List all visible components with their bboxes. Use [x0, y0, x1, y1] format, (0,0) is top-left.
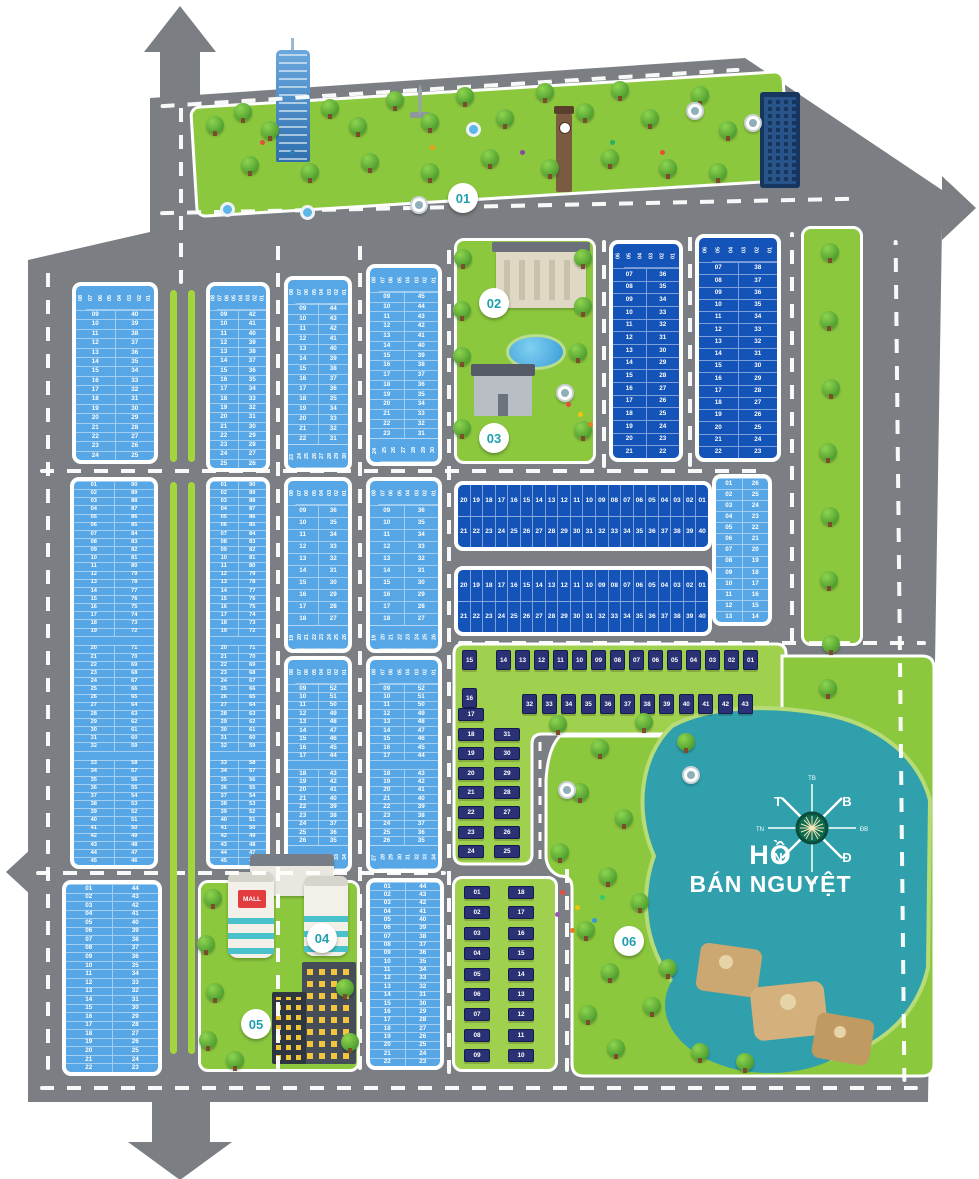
lot-cell[interactable]: 03	[413, 268, 422, 292]
lot-cell[interactable]: 16	[288, 375, 318, 384]
lot-cell[interactable]: 35	[633, 517, 646, 548]
lot-cell[interactable]: 31	[646, 332, 680, 344]
lot-cell[interactable]: 22	[66, 1064, 112, 1072]
lot-cell[interactable]: 25	[112, 1047, 159, 1055]
lot-cell[interactable]: 16	[370, 590, 404, 601]
lot-cell[interactable]: 48	[114, 842, 155, 849]
lot-cell[interactable]: 18	[370, 381, 404, 390]
lot-cell[interactable]: 03	[413, 660, 422, 684]
lot-cell[interactable]: 20	[76, 414, 115, 422]
lot-cell[interactable]: 09	[595, 485, 608, 516]
house-lot[interactable]: 13	[515, 650, 530, 670]
lot-cell[interactable]: 74	[238, 612, 267, 619]
lot-cell[interactable]: 19	[613, 421, 646, 433]
lot-cell[interactable]: 31	[582, 602, 595, 633]
lot-cell[interactable]: 05	[396, 660, 405, 684]
lot-cell[interactable]: 17	[370, 753, 404, 760]
lot-cell[interactable]: 45	[74, 858, 114, 865]
lot-cell[interactable]: 52	[238, 809, 267, 816]
lot-cell[interactable]: 37	[210, 793, 238, 800]
house-lot[interactable]: 33	[542, 694, 557, 714]
house-lot[interactable]: 24	[458, 845, 484, 858]
lot-cell[interactable]: 03	[646, 244, 657, 268]
lot-cell[interactable]: 30	[115, 405, 155, 413]
lot-cell[interactable]: 13	[545, 485, 558, 516]
lot-cell[interactable]: 16	[74, 604, 114, 611]
lot-cell[interactable]: 85	[238, 523, 267, 530]
lot-cell[interactable]: 06	[66, 928, 112, 936]
lot-cell[interactable]: 32	[413, 846, 422, 869]
lot-cell[interactable]: 29	[557, 602, 570, 633]
lot-block-m9[interactable]: 0807060504030201095210511150124913481447…	[366, 656, 442, 873]
lot-cell[interactable]: 23	[404, 626, 413, 649]
lot-cell[interactable]: 51	[238, 817, 267, 824]
lot-cell[interactable]: 17	[210, 612, 238, 619]
lot-cell[interactable]: 13	[288, 345, 318, 354]
lot-cell[interactable]: 76	[238, 596, 267, 603]
lot-cell[interactable]: 40	[404, 342, 439, 351]
lot-cell[interactable]: 01	[210, 482, 238, 489]
lot-cell[interactable]: 69	[238, 662, 267, 669]
lot-cell[interactable]: 23	[112, 1064, 159, 1072]
house-lot[interactable]: 42	[718, 694, 733, 714]
lot-cell[interactable]: 22	[646, 446, 680, 458]
lot-cell[interactable]: 40	[318, 795, 349, 802]
lot-cell[interactable]: 16	[66, 1013, 112, 1021]
lot-cell[interactable]: 47	[318, 727, 349, 734]
lot-cell[interactable]: 19	[470, 485, 483, 516]
lot-cell[interactable]: 06	[96, 286, 106, 310]
lot-block-m2[interactable]: 0190028903880487058606850784088309821081…	[206, 477, 270, 869]
lot-cell[interactable]: 02	[421, 481, 430, 505]
lot-cell[interactable]: 53	[238, 801, 267, 808]
lot-cell[interactable]: 24	[370, 439, 380, 462]
lot-cell[interactable]: 47	[404, 727, 439, 734]
lot-cell[interactable]: 36	[404, 506, 439, 517]
house-lot[interactable]: 30	[494, 747, 520, 760]
lot-cell[interactable]: 04	[115, 286, 125, 310]
lot-cell[interactable]: 04	[725, 238, 738, 262]
lot-cell[interactable]: 12	[76, 339, 115, 347]
lot-cell[interactable]: 14	[532, 485, 545, 516]
lot-cell[interactable]: 08	[288, 660, 296, 684]
lot-cell[interactable]: 41	[318, 787, 349, 794]
lot-cell[interactable]: 63	[114, 711, 155, 718]
lot-cell[interactable]: 32	[405, 983, 441, 990]
lot-cell[interactable]: 24	[112, 1056, 159, 1064]
lot-cell[interactable]: 23	[742, 512, 769, 522]
house-lot[interactable]: 05	[667, 650, 682, 670]
lot-cell[interactable]: 15	[210, 596, 238, 603]
lot-cell[interactable]: 73	[114, 620, 155, 627]
lot-cell[interactable]: 38	[112, 936, 159, 944]
lot-cell[interactable]: 15	[288, 578, 318, 589]
lot-cell[interactable]: 34	[404, 530, 439, 541]
lot-cell[interactable]: 10	[210, 320, 238, 328]
lot-cell[interactable]: 18	[210, 395, 238, 403]
lot-cell[interactable]: 25	[380, 439, 390, 462]
lot-cell[interactable]: 30	[74, 727, 114, 734]
lot-cell[interactable]: 17	[495, 485, 508, 516]
lot-cell[interactable]: 35	[210, 777, 238, 784]
lot-cell[interactable]: 11	[74, 563, 114, 570]
lot-cell[interactable]: 22	[76, 433, 115, 441]
lot-cell[interactable]: 78	[114, 580, 155, 587]
lot-cell[interactable]: 40	[74, 817, 114, 824]
lot-cell[interactable]: 33	[210, 761, 238, 768]
lot-cell[interactable]: 05	[396, 268, 405, 292]
lot-cell[interactable]: 36	[115, 349, 155, 357]
lot-cell[interactable]: 43	[405, 891, 441, 898]
lot-cell[interactable]: 08	[76, 286, 86, 310]
lot-cell[interactable]: 08	[613, 282, 646, 294]
lot-cell[interactable]: 60	[114, 735, 155, 742]
lot-cell[interactable]: 54	[114, 793, 155, 800]
lot-cell[interactable]: 44	[112, 885, 159, 893]
lot-cell[interactable]: 05	[716, 523, 742, 533]
house-lot[interactable]: 11	[553, 650, 568, 670]
lot-cell[interactable]: 01	[430, 481, 439, 505]
lot-cell[interactable]: 75	[114, 604, 155, 611]
house-lot[interactable]: 06	[648, 650, 663, 670]
lot-cell[interactable]: 19	[288, 405, 318, 414]
lot-cell[interactable]: 09	[288, 506, 318, 517]
lot-cell[interactable]: 18	[76, 395, 115, 403]
lot-cell[interactable]: 38	[670, 517, 683, 548]
lot-cell[interactable]: 25	[210, 686, 238, 693]
lot-cell[interactable]: 19	[370, 778, 404, 785]
lot-cell[interactable]: 49	[404, 710, 439, 717]
lot-cell[interactable]: 36	[646, 269, 680, 281]
house-lot[interactable]: 34	[561, 694, 576, 714]
lot-cell[interactable]: 25	[507, 602, 520, 633]
lot-cell[interactable]: 10	[288, 315, 318, 324]
lot-cell[interactable]: 13	[66, 988, 112, 996]
lot-cell[interactable]: 83	[238, 539, 267, 546]
lot-cell[interactable]: 29	[557, 517, 570, 548]
house-lot[interactable]: 15	[508, 947, 534, 960]
house-lot[interactable]: 07	[464, 1008, 490, 1021]
lot-cell[interactable]: 11	[76, 330, 115, 338]
lot-cell[interactable]: 30	[646, 345, 680, 357]
lot-cell[interactable]: 32	[404, 554, 439, 565]
lot-cell[interactable]: 42	[210, 834, 238, 841]
lot-cell[interactable]: 39	[683, 602, 696, 633]
lot-cell[interactable]: 64	[238, 703, 267, 710]
lot-cell[interactable]: 21	[613, 446, 646, 458]
lot-cell[interactable]: 03	[738, 238, 751, 262]
lot-cell[interactable]: 21	[303, 626, 311, 649]
lot-cell[interactable]: 22	[74, 662, 114, 669]
lot-cell[interactable]: 89	[238, 490, 267, 497]
lot-cell[interactable]: 11	[370, 967, 405, 974]
lot-cell[interactable]: 07	[217, 286, 224, 310]
lot-cell[interactable]: 27	[238, 450, 267, 458]
lot-cell[interactable]: 54	[238, 793, 267, 800]
house-lot[interactable]: 08	[464, 1029, 490, 1042]
lot-cell[interactable]: 17	[370, 1017, 405, 1024]
house-lot[interactable]: 05	[464, 968, 490, 981]
lot-cell[interactable]: 41	[318, 335, 349, 344]
lot-cell[interactable]: 44	[318, 753, 349, 760]
lot-cell[interactable]: 04	[716, 512, 742, 522]
lot-cell[interactable]: 20	[370, 1042, 405, 1049]
lot-cell[interactable]: 45	[404, 293, 439, 302]
lot-cell[interactable]: 11	[613, 320, 646, 332]
lot-cell[interactable]: 16	[76, 377, 115, 385]
lot-cell[interactable]: 18	[370, 1025, 405, 1032]
lot-cell[interactable]: 40	[210, 817, 238, 824]
lot-cell[interactable]: 21	[370, 410, 404, 419]
lot-cell[interactable]: 32	[318, 554, 349, 565]
lot-cell[interactable]: 14	[370, 727, 404, 734]
lot-cell[interactable]: 31	[404, 846, 413, 869]
lot-cell[interactable]: 33	[318, 415, 349, 424]
lot-cell[interactable]: 18	[742, 568, 769, 578]
lot-cell[interactable]: 12	[66, 979, 112, 987]
lot-cell[interactable]: 77	[238, 588, 267, 595]
lot-cell[interactable]: 24	[76, 452, 115, 460]
lot-cell[interactable]: 27	[370, 846, 379, 869]
lot-cell[interactable]: 28	[326, 445, 334, 468]
lot-cell[interactable]: 11	[210, 563, 238, 570]
lot-cell[interactable]: 10	[288, 693, 318, 700]
lot-cell[interactable]: 03	[125, 286, 135, 310]
lot-cell[interactable]: 05	[231, 286, 238, 310]
lot-cell[interactable]: 09	[210, 547, 238, 554]
lot-cell[interactable]: 24	[405, 1050, 441, 1057]
lot-cell[interactable]: 17	[76, 386, 115, 394]
lot-cell[interactable]: 25	[421, 626, 430, 649]
lot-cell[interactable]: 01	[430, 660, 439, 684]
lot-cell[interactable]: 36	[405, 950, 441, 957]
lot-cell[interactable]: 27	[738, 398, 778, 409]
lot-cell[interactable]: 14	[288, 727, 318, 734]
lot-cell[interactable]: 34	[738, 312, 778, 323]
lot-cell[interactable]: 19	[370, 626, 379, 649]
lot-cell[interactable]: 30	[396, 846, 405, 869]
lot-cell[interactable]: 19	[210, 629, 238, 636]
lot-cell[interactable]: 05	[712, 238, 725, 262]
lot-cell[interactable]: 28	[404, 602, 439, 613]
lot-cell[interactable]: 13	[370, 332, 404, 341]
lot-cell[interactable]: 38	[238, 348, 267, 356]
lot-cell[interactable]: 29	[419, 439, 429, 462]
house-lot[interactable]: 04	[464, 947, 490, 960]
lot-cell[interactable]: 10	[699, 300, 738, 311]
lot-cell[interactable]: 06	[633, 485, 646, 516]
lot-cell[interactable]: 06	[210, 523, 238, 530]
lot-cell[interactable]: 16	[210, 604, 238, 611]
lot-cell[interactable]: 28	[646, 370, 680, 382]
lot-cell[interactable]: 18	[482, 485, 495, 516]
lot-cell[interactable]: 55	[114, 785, 155, 792]
lot-cell[interactable]: 09	[595, 570, 608, 601]
lot-cell[interactable]: 71	[114, 646, 155, 653]
lot-cell[interactable]: 10	[210, 555, 238, 562]
lot-cell[interactable]: 21	[66, 1056, 112, 1064]
lot-cell[interactable]: 30	[318, 578, 349, 589]
lot-cell[interactable]: 82	[238, 547, 267, 554]
lot-cell[interactable]: 35	[404, 390, 439, 399]
lot-cell[interactable]: 43	[318, 315, 349, 324]
lot-cell[interactable]: 81	[238, 555, 267, 562]
lot-cell[interactable]: 17	[495, 570, 508, 601]
lot-cell[interactable]: 15	[370, 1000, 405, 1007]
lot-cell[interactable]: 19	[66, 1039, 112, 1047]
lot-cell[interactable]: 09	[613, 294, 646, 306]
lot-cell[interactable]: 24	[742, 501, 769, 511]
lot-cell[interactable]: 49	[238, 834, 267, 841]
house-lot[interactable]: 18	[458, 728, 484, 741]
lot-cell[interactable]: 26	[389, 439, 399, 462]
lot-cell[interactable]: 40	[405, 916, 441, 923]
lot-cell[interactable]: 26	[520, 602, 533, 633]
lot-cell[interactable]: 11	[288, 702, 318, 709]
lot-cell[interactable]: 21	[210, 654, 238, 661]
lot-cell[interactable]: 03	[413, 481, 422, 505]
lot-cell[interactable]: 44	[74, 850, 114, 857]
lot-cell[interactable]: 22	[210, 432, 238, 440]
lot-cell[interactable]: 36	[404, 829, 439, 836]
lot-cell[interactable]: 16	[288, 590, 318, 601]
lot-cell[interactable]: 56	[114, 777, 155, 784]
lot-cell[interactable]: 22	[470, 602, 483, 633]
lot-cell[interactable]: 31	[112, 996, 159, 1004]
lot-cell[interactable]: 18	[288, 395, 318, 404]
lot-cell[interactable]: 29	[115, 414, 155, 422]
lot-cell[interactable]: 38	[318, 812, 349, 819]
lot-cell[interactable]: 10	[370, 303, 404, 312]
lot-cell[interactable]: 26	[238, 460, 267, 468]
lot-cell[interactable]: 06	[387, 660, 396, 684]
house-lot[interactable]: 39	[659, 694, 674, 714]
lot-cell[interactable]: 24	[370, 821, 404, 828]
lot-cell[interactable]: 70	[238, 654, 267, 661]
lot-cell[interactable]: 31	[404, 429, 439, 438]
lot-cell[interactable]: 16	[370, 744, 404, 751]
lot-cell[interactable]: 34	[74, 769, 114, 776]
lot-cell[interactable]: 36	[318, 385, 349, 394]
lot-cell[interactable]: 17	[613, 396, 646, 408]
lot-cell[interactable]: 17	[288, 602, 318, 613]
lot-cell[interactable]: 39	[74, 809, 114, 816]
lot-cell[interactable]: 29	[74, 719, 114, 726]
lot-cell[interactable]: 04	[404, 268, 413, 292]
lot-cell[interactable]: 22	[288, 435, 318, 444]
lot-cell[interactable]: 58	[238, 761, 267, 768]
lot-cell[interactable]: 16	[288, 744, 318, 751]
lot-cell[interactable]: 07	[613, 269, 646, 281]
lot-cell[interactable]: 04	[318, 280, 326, 304]
lot-cell[interactable]: 42	[112, 902, 159, 910]
lot-cell[interactable]: 37	[318, 821, 349, 828]
lot-cell[interactable]: 12	[613, 332, 646, 344]
lot-cell[interactable]: 34	[646, 294, 680, 306]
lot-cell[interactable]: 07	[379, 268, 388, 292]
lot-cell[interactable]: 80	[114, 563, 155, 570]
lot-cell[interactable]: 48	[404, 719, 439, 726]
house-lot[interactable]: 10	[572, 650, 587, 670]
lot-cell[interactable]: 78	[238, 580, 267, 587]
lot-cell[interactable]: 33	[238, 395, 267, 403]
house-lot[interactable]: 08	[610, 650, 625, 670]
lot-cell[interactable]: 08	[608, 485, 621, 516]
lot-cell[interactable]: 05	[66, 919, 112, 927]
lot-cell[interactable]: 44	[404, 753, 439, 760]
lot-cell[interactable]: 38	[405, 933, 441, 940]
lot-cell[interactable]: 40	[112, 919, 159, 927]
lot-cell[interactable]: 09	[76, 311, 115, 319]
lot-cell[interactable]: 26	[370, 837, 404, 844]
lot-cell[interactable]: 36	[738, 288, 778, 299]
house-lot[interactable]: 32	[522, 694, 537, 714]
lot-cell[interactable]: 29	[387, 846, 396, 869]
lot-cell[interactable]: 15	[74, 596, 114, 603]
lot-cell[interactable]: 01	[341, 660, 349, 684]
lot-cell[interactable]: 30	[570, 602, 583, 633]
lot-cell[interactable]: 43	[404, 312, 439, 321]
lot-cell[interactable]: 06	[370, 925, 405, 932]
lot-cell[interactable]: 34	[210, 769, 238, 776]
lot-cell[interactable]: 46	[404, 736, 439, 743]
lot-cell[interactable]: 14	[742, 612, 769, 622]
house-lot[interactable]: 17	[508, 906, 534, 919]
lot-cell[interactable]: 62	[238, 719, 267, 726]
house-lot[interactable]: 16	[508, 927, 534, 940]
house-lot[interactable]: 29	[494, 767, 520, 780]
house-lot[interactable]: 15	[462, 650, 477, 670]
lot-cell[interactable]: 02	[751, 238, 764, 262]
lot-cell[interactable]: 28	[405, 1017, 441, 1024]
lot-cell[interactable]: 35	[404, 837, 439, 844]
lot-cell[interactable]: 06	[387, 481, 396, 505]
lot-cell[interactable]: 35	[633, 602, 646, 633]
lot-cell[interactable]: 38	[318, 365, 349, 374]
lot-cell[interactable]: 47	[114, 850, 155, 857]
lot-cell[interactable]: 20	[379, 626, 388, 649]
lot-cell[interactable]: 41	[238, 320, 267, 328]
lot-cell[interactable]: 42	[404, 322, 439, 331]
lot-cell[interactable]: 20	[288, 787, 318, 794]
lot-cell[interactable]: 26	[115, 442, 155, 450]
lot-cell[interactable]: 04	[66, 911, 112, 919]
lot-cell[interactable]: 11	[570, 485, 583, 516]
lot-cell[interactable]: 18	[699, 398, 738, 409]
lot-cell[interactable]: 04	[404, 481, 413, 505]
lot-cell[interactable]: 10	[370, 958, 405, 965]
lot-cell[interactable]: 16	[742, 590, 769, 600]
lot-cell[interactable]: 79	[238, 572, 267, 579]
lot-cell[interactable]: 16	[507, 485, 520, 516]
lot-cell[interactable]: 12	[288, 710, 318, 717]
lot-cell[interactable]: 12	[288, 542, 318, 553]
lot-cell[interactable]: 72	[114, 629, 155, 636]
lot-cell[interactable]: 28	[379, 846, 388, 869]
lot-cell[interactable]: 21	[288, 795, 318, 802]
lot-cell[interactable]: 31	[405, 992, 441, 999]
lot-cell[interactable]: 23	[210, 441, 238, 449]
lot-cell[interactable]: 21	[742, 534, 769, 544]
lot-cell[interactable]: 20	[210, 646, 238, 653]
lot-cell[interactable]: 39	[318, 804, 349, 811]
lot-cell[interactable]: 39	[238, 339, 267, 347]
lot-cell[interactable]: 24	[288, 821, 318, 828]
lot-cell[interactable]: 09	[74, 547, 114, 554]
lot-cell[interactable]: 29	[738, 373, 778, 384]
lot-cell[interactable]: 19	[210, 404, 238, 412]
lot-cell[interactable]: 20	[210, 413, 238, 421]
